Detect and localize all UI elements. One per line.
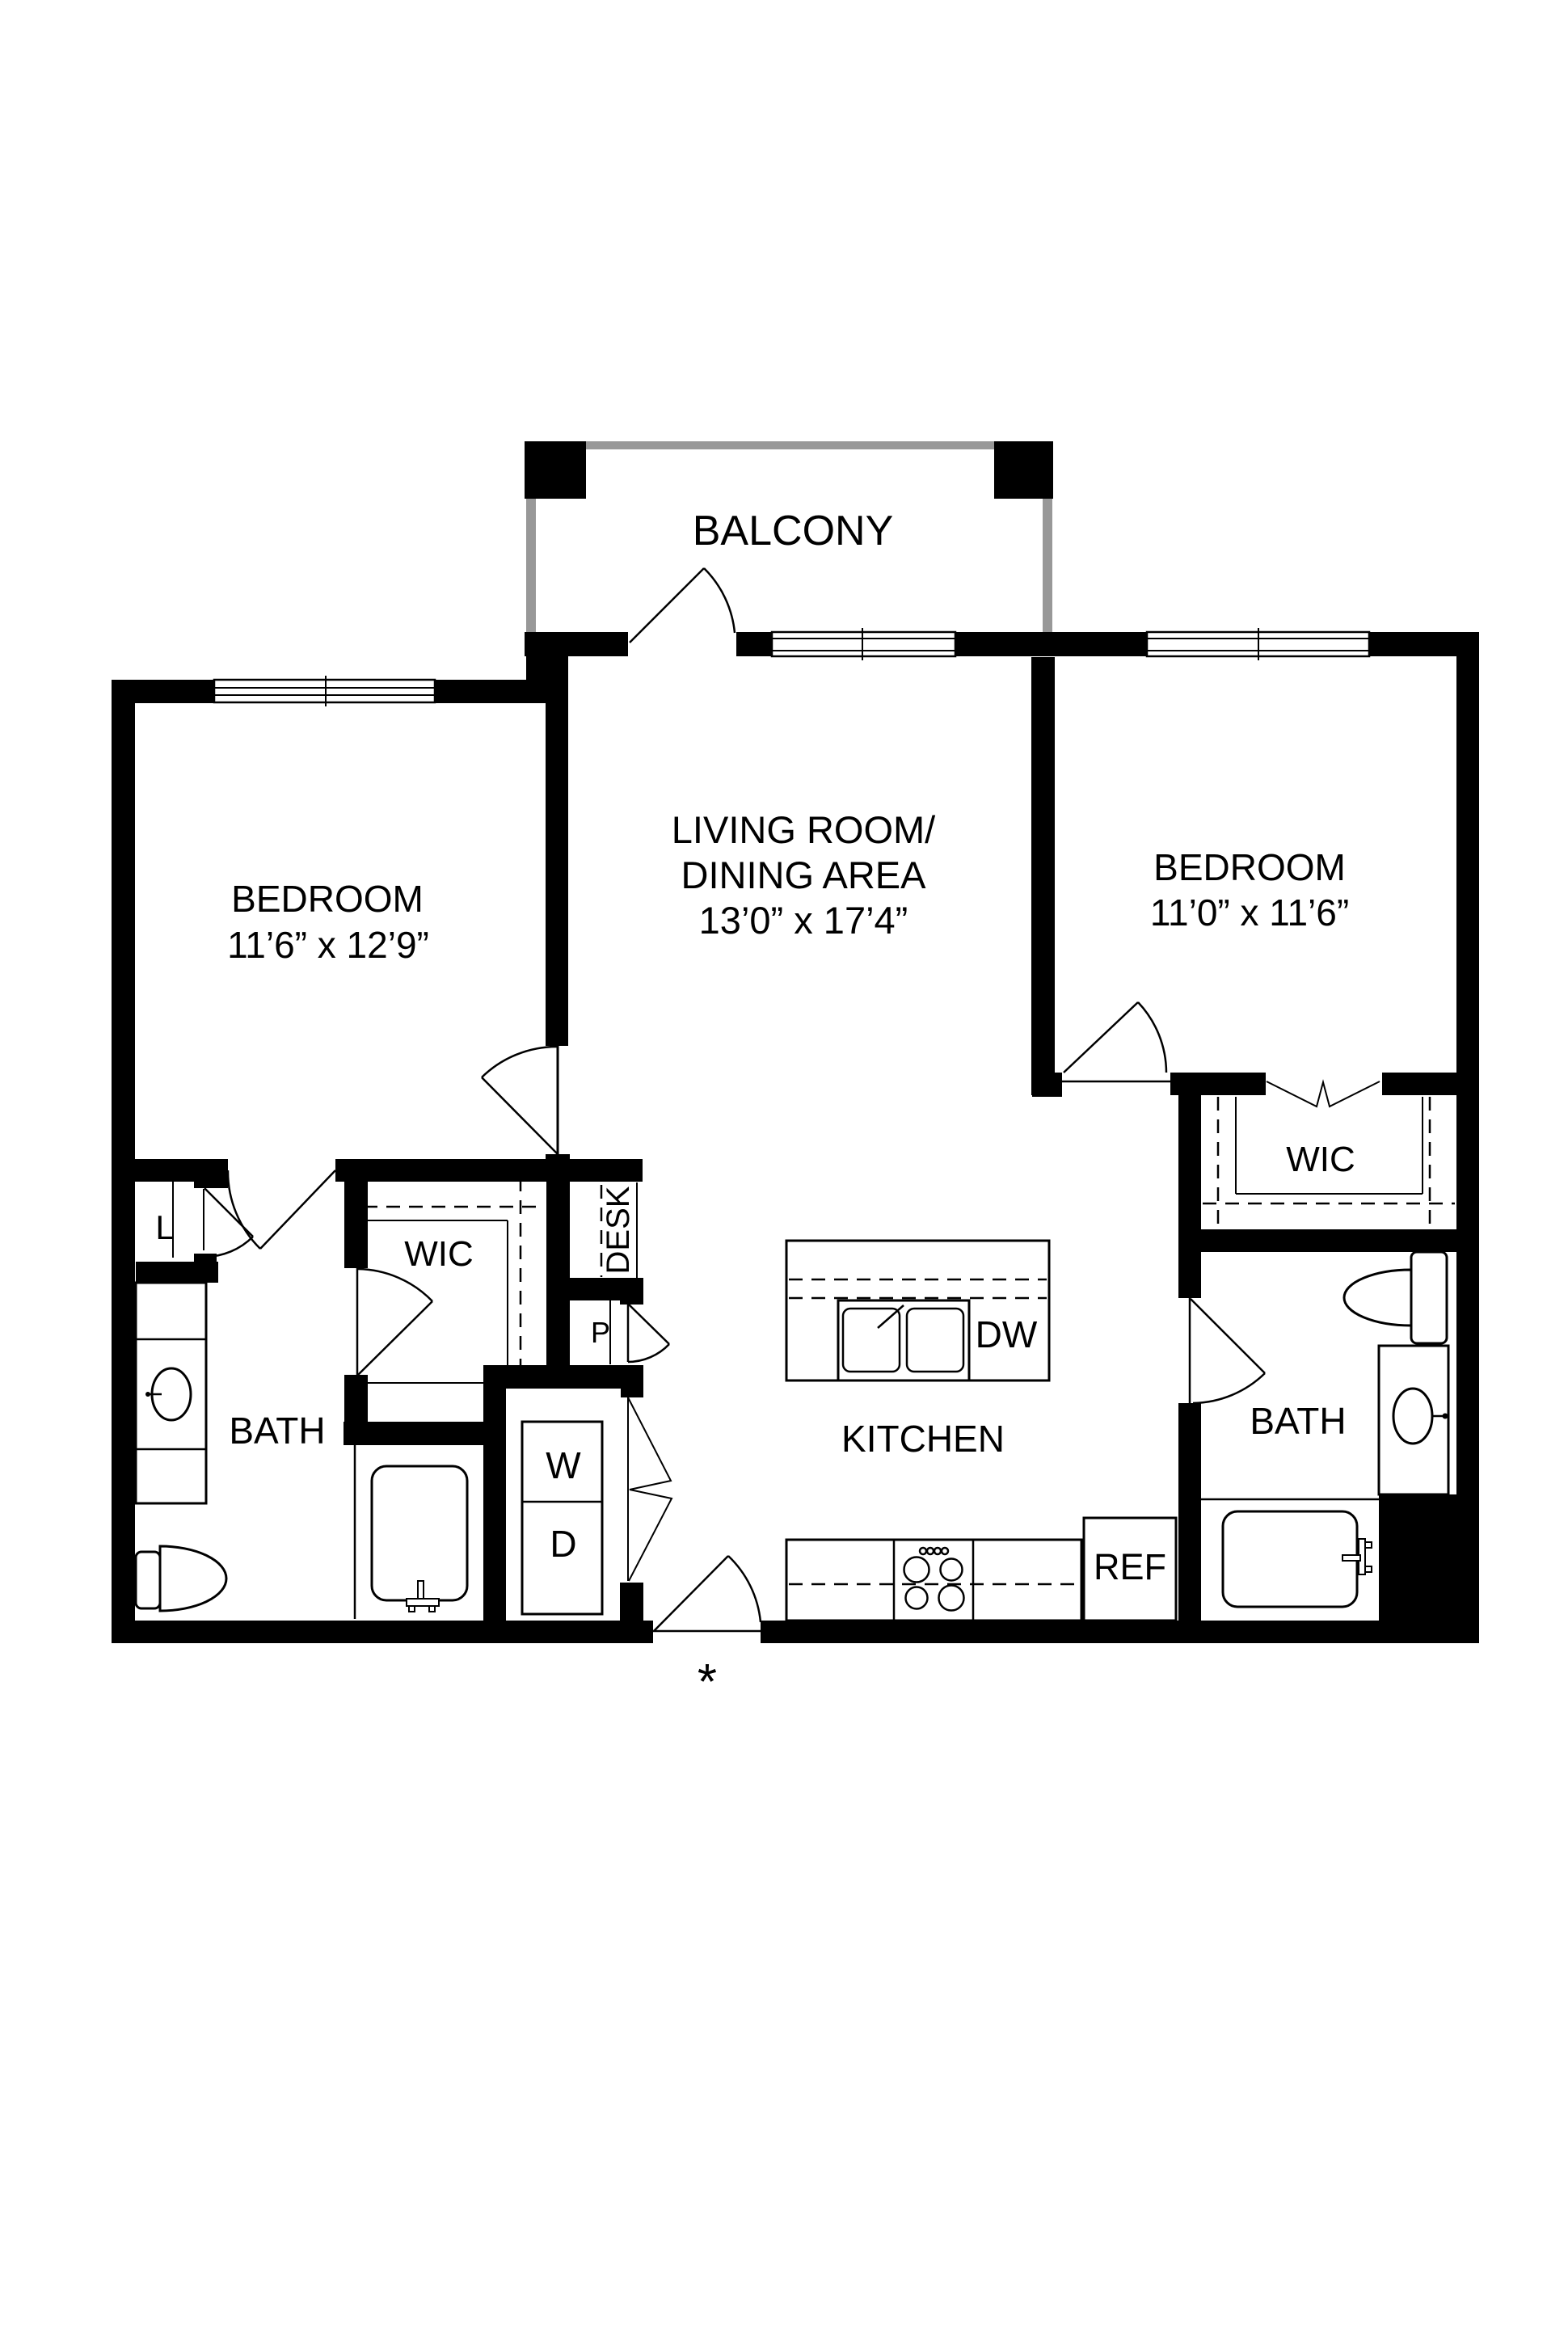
svg-text:11’0” x 11’6”: 11’0” x 11’6” <box>1150 891 1349 934</box>
svg-text:BALCONY: BALCONY <box>693 508 894 554</box>
svg-text:*: * <box>698 1654 717 1710</box>
svg-text:W: W <box>546 1444 581 1486</box>
svg-text:BATH: BATH <box>1250 1400 1346 1442</box>
svg-text:L: L <box>155 1208 174 1246</box>
svg-text:BEDROOM: BEDROOM <box>231 878 424 920</box>
svg-text:BATH: BATH <box>229 1410 325 1452</box>
svg-text:BEDROOM: BEDROOM <box>1153 846 1346 888</box>
svg-text:DESK: DESK <box>601 1186 636 1274</box>
svg-text:P: P <box>591 1316 610 1349</box>
svg-text:REF: REF <box>1094 1546 1166 1587</box>
svg-text:KITCHEN: KITCHEN <box>841 1418 1005 1460</box>
svg-text:D: D <box>550 1523 576 1565</box>
svg-text:DINING AREA: DINING AREA <box>681 854 927 896</box>
svg-text:WIC: WIC <box>1286 1140 1355 1179</box>
svg-text:WIC: WIC <box>404 1234 474 1274</box>
svg-text:11’6” x 12’9”: 11’6” x 12’9” <box>227 924 429 966</box>
svg-text:13’0” x 17’4”: 13’0” x 17’4” <box>699 899 908 942</box>
svg-text:DW: DW <box>976 1313 1038 1355</box>
svg-text:LIVING ROOM/: LIVING ROOM/ <box>672 808 936 851</box>
